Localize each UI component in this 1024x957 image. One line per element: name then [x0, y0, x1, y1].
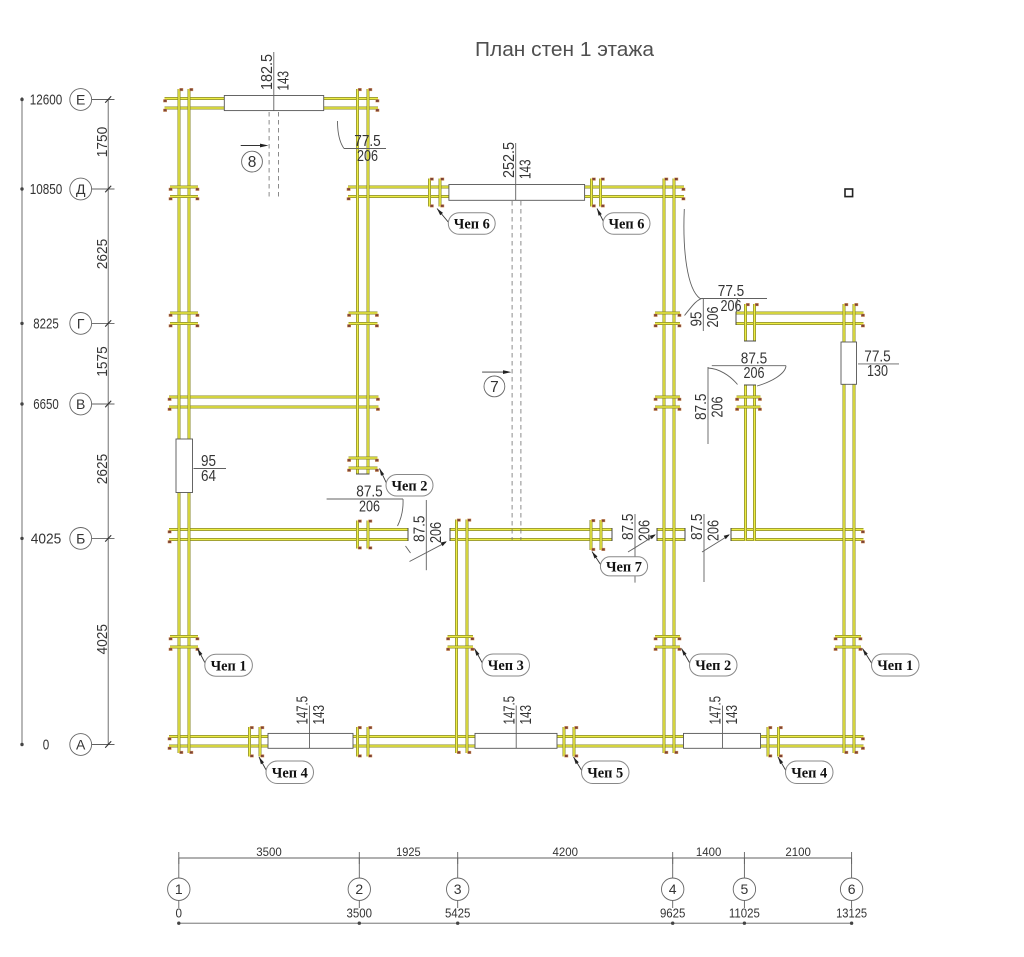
- svg-text:Чеп 2: Чеп 2: [392, 478, 428, 494]
- svg-text:206: 206: [428, 522, 445, 543]
- svg-text:143: 143: [518, 705, 535, 725]
- svg-text:147.5: 147.5: [295, 696, 312, 725]
- svg-text:Чеп 5: Чеп 5: [587, 766, 623, 782]
- svg-text:13125: 13125: [836, 907, 867, 921]
- svg-text:3500: 3500: [256, 845, 282, 859]
- svg-text:143: 143: [311, 705, 328, 725]
- svg-text:4200: 4200: [553, 845, 579, 859]
- svg-text:2: 2: [355, 881, 363, 897]
- svg-text:Чеп 6: Чеп 6: [454, 217, 490, 233]
- svg-text:64: 64: [201, 468, 216, 485]
- svg-text:4025: 4025: [94, 624, 111, 655]
- svg-text:6: 6: [848, 881, 856, 897]
- svg-text:87.5: 87.5: [689, 514, 706, 541]
- svg-text:87.5: 87.5: [620, 514, 637, 541]
- svg-text:8225: 8225: [33, 315, 59, 332]
- svg-text:0: 0: [43, 737, 50, 754]
- svg-text:1400: 1400: [696, 845, 722, 859]
- svg-text:Б: Б: [76, 530, 85, 546]
- svg-text:87.5: 87.5: [412, 516, 429, 543]
- svg-text:143: 143: [517, 160, 534, 180]
- svg-text:Чеп 2: Чеп 2: [695, 658, 731, 674]
- svg-text:1925: 1925: [396, 845, 421, 859]
- svg-text:143: 143: [275, 71, 292, 91]
- svg-text:8: 8: [248, 154, 257, 171]
- svg-text:206: 206: [359, 498, 380, 515]
- svg-text:130: 130: [867, 363, 888, 380]
- svg-text:Чеп 1: Чеп 1: [877, 658, 913, 674]
- svg-text:5425: 5425: [445, 907, 471, 921]
- svg-text:4025: 4025: [31, 530, 62, 547]
- svg-text:3: 3: [454, 881, 462, 897]
- svg-text:147.5: 147.5: [501, 696, 518, 725]
- svg-text:Чеп 4: Чеп 4: [791, 766, 827, 782]
- svg-text:10850: 10850: [30, 181, 63, 198]
- svg-text:206: 206: [706, 520, 723, 541]
- svg-text:143: 143: [724, 705, 741, 725]
- svg-text:Чеп 6: Чеп 6: [609, 217, 645, 233]
- svg-text:206: 206: [357, 148, 378, 165]
- svg-text:206: 206: [744, 365, 765, 382]
- svg-text:87.5: 87.5: [693, 394, 710, 421]
- svg-text:Е: Е: [76, 92, 85, 108]
- svg-text:6650: 6650: [33, 396, 59, 413]
- svg-text:3500: 3500: [347, 907, 373, 921]
- svg-text:11025: 11025: [729, 907, 760, 921]
- svg-text:206: 206: [710, 397, 727, 418]
- svg-text:Г: Г: [77, 315, 85, 331]
- svg-text:5: 5: [741, 881, 749, 897]
- svg-text:4: 4: [669, 881, 677, 897]
- svg-text:1: 1: [175, 881, 183, 897]
- svg-text:95: 95: [689, 312, 706, 327]
- svg-text:Чеп 3: Чеп 3: [488, 658, 524, 674]
- svg-text:252.5: 252.5: [501, 142, 518, 178]
- svg-text:Чеп 7: Чеп 7: [606, 560, 642, 576]
- svg-text:7: 7: [490, 379, 499, 396]
- svg-text:147.5: 147.5: [708, 696, 725, 725]
- svg-text:206: 206: [705, 307, 722, 328]
- svg-text:План стен 1 этажа: План стен 1 этажа: [475, 38, 655, 61]
- svg-text:В: В: [76, 396, 85, 412]
- svg-text:2625: 2625: [94, 454, 111, 485]
- svg-text:182.5: 182.5: [259, 54, 276, 90]
- svg-text:1575: 1575: [94, 346, 111, 377]
- svg-text:1750: 1750: [94, 127, 111, 158]
- svg-text:9625: 9625: [660, 907, 686, 921]
- svg-text:12600: 12600: [30, 92, 63, 109]
- svg-text:А: А: [76, 737, 86, 753]
- svg-text:Д: Д: [76, 181, 86, 197]
- svg-text:2625: 2625: [94, 239, 111, 270]
- svg-text:Чеп 4: Чеп 4: [272, 766, 308, 782]
- svg-text:206: 206: [721, 298, 742, 315]
- svg-text:0: 0: [176, 907, 183, 921]
- svg-text:Чеп 1: Чеп 1: [211, 658, 247, 674]
- svg-text:2100: 2100: [785, 845, 811, 859]
